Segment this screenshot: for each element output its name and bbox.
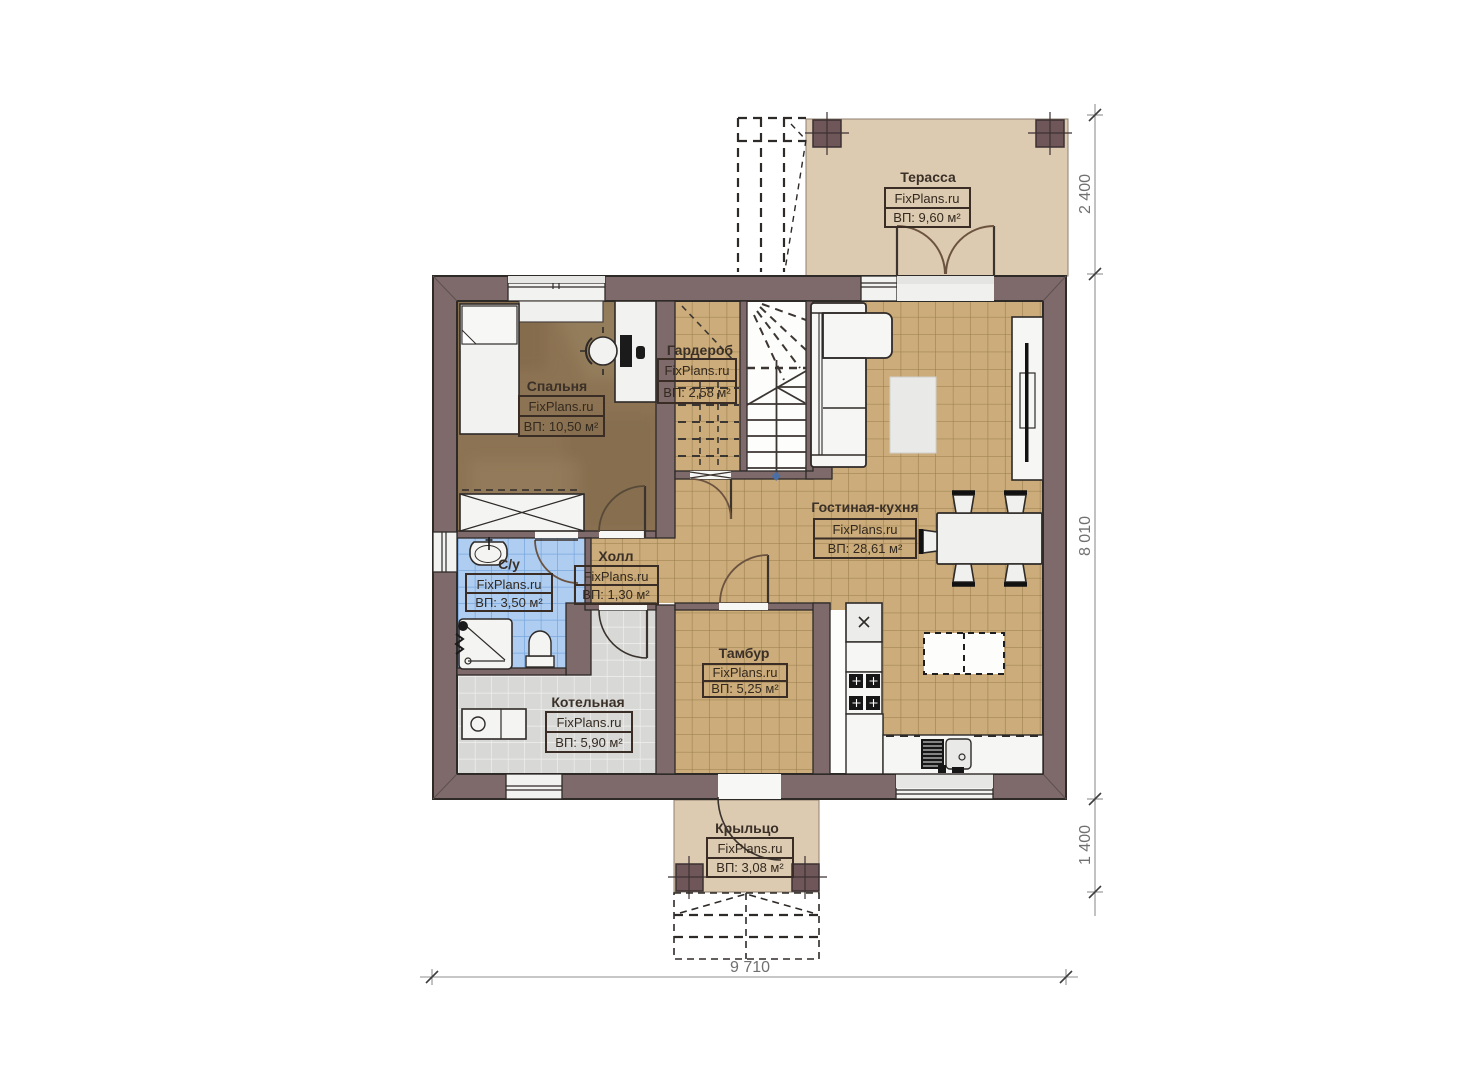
svg-text:С/у: С/у	[498, 556, 520, 572]
svg-text:ВП: 3,50 м²: ВП: 3,50 м²	[475, 595, 543, 610]
svg-text:Гостиная-кухня: Гостиная-кухня	[811, 499, 918, 515]
svg-text:ВП: 5,90 м²: ВП: 5,90 м²	[555, 735, 623, 750]
svg-text:Котельная: Котельная	[551, 694, 624, 710]
svg-text:FixPlans.ru: FixPlans.ru	[664, 363, 729, 378]
svg-text:ВП: 1,30 м²: ВП: 1,30 м²	[582, 587, 650, 602]
svg-text:9 710: 9 710	[730, 959, 770, 976]
svg-text:Тамбур: Тамбур	[719, 645, 770, 661]
svg-text:ВП: 9,60 м²: ВП: 9,60 м²	[893, 210, 961, 225]
svg-text:ВП: 2,58 м²: ВП: 2,58 м²	[663, 385, 731, 400]
svg-text:FixPlans.ru: FixPlans.ru	[528, 399, 593, 414]
svg-text:ВП: 5,25 м²: ВП: 5,25 м²	[711, 681, 779, 696]
svg-text:FixPlans.ru: FixPlans.ru	[556, 715, 621, 730]
svg-text:FixPlans.ru: FixPlans.ru	[583, 569, 648, 584]
svg-text:ВП: 28,61 м²: ВП: 28,61 м²	[828, 541, 903, 556]
svg-text:Крыльцо: Крыльцо	[715, 820, 779, 836]
svg-text:1 400: 1 400	[1077, 825, 1094, 865]
svg-text:ВП: 10,50 м²: ВП: 10,50 м²	[524, 419, 599, 434]
svg-text:Спальня: Спальня	[527, 378, 587, 394]
svg-text:Терасса: Терасса	[900, 169, 956, 185]
svg-text:Холл: Холл	[598, 548, 633, 564]
svg-text:FixPlans.ru: FixPlans.ru	[712, 665, 777, 680]
svg-text:Гардероб: Гардероб	[667, 342, 734, 358]
svg-text:FixPlans.ru: FixPlans.ru	[832, 522, 897, 537]
svg-text:ВП: 3,08 м²: ВП: 3,08 м²	[716, 860, 784, 875]
svg-text:FixPlans.ru: FixPlans.ru	[476, 577, 541, 592]
svg-text:FixPlans.ru: FixPlans.ru	[717, 841, 782, 856]
svg-text:8 010: 8 010	[1077, 516, 1094, 556]
svg-text:FixPlans.ru: FixPlans.ru	[894, 191, 959, 206]
svg-text:2 400: 2 400	[1077, 174, 1094, 214]
